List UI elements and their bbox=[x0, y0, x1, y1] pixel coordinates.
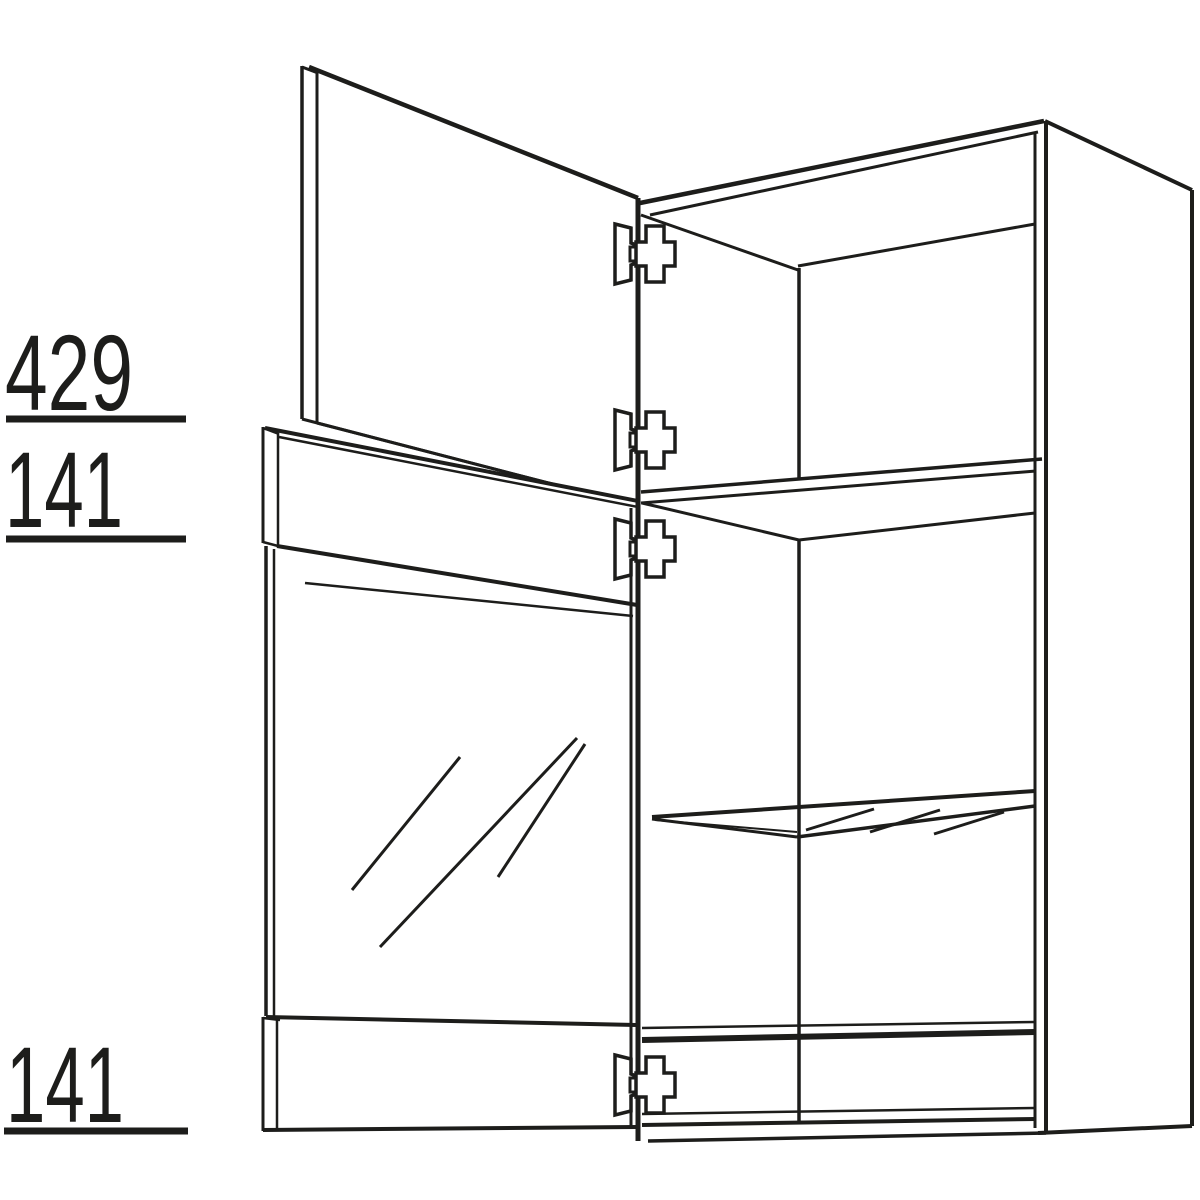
cabinet-technical-drawing: 429 141 141 bbox=[0, 0, 1200, 1200]
shelf-front-left-edge bbox=[652, 819, 797, 837]
bottom-front-top-edge bbox=[642, 1108, 1035, 1114]
glass-shelf bbox=[652, 791, 1035, 837]
dimension-labels: 429 141 141 bbox=[4, 312, 188, 1145]
bottom-front-band bbox=[642, 1119, 1035, 1125]
top-panel-inner-edge bbox=[650, 132, 1038, 215]
top-door-top-edge bbox=[309, 67, 638, 198]
dimension-top-door: 429 bbox=[5, 312, 133, 433]
bottom-outer-edge bbox=[648, 1133, 1046, 1141]
bottom-back-band bbox=[642, 1032, 1035, 1040]
divider-back-edge bbox=[799, 513, 1035, 540]
hinge-icon bbox=[615, 224, 675, 284]
hinge-icon bbox=[615, 519, 675, 579]
technical-drawing-page: 429 141 141 bbox=[0, 0, 1200, 1200]
hinge-icon bbox=[615, 410, 675, 470]
glass-pane-top-edge bbox=[305, 583, 633, 616]
bottom-back-edge bbox=[642, 1022, 1035, 1028]
top-door-bottom-edge-inner bbox=[317, 423, 560, 486]
glass-reflection-lines bbox=[352, 738, 585, 947]
top-panel-front-edge bbox=[640, 121, 1044, 203]
glass-door bbox=[263, 427, 638, 1131]
right-panel-bottom-edge bbox=[1038, 1126, 1192, 1133]
glass-door-bottom-rail bbox=[263, 1017, 637, 1131]
cabinet-carcass bbox=[638, 121, 1192, 1141]
ceiling-back-edge bbox=[798, 224, 1035, 266]
hinge-icon bbox=[615, 1055, 675, 1115]
hinges bbox=[615, 224, 675, 1115]
right-panel-top-edge bbox=[1045, 121, 1192, 190]
dimension-top-rail: 141 bbox=[5, 429, 123, 550]
top-door bbox=[302, 66, 638, 486]
dimension-bottom-rail: 141 bbox=[6, 1024, 124, 1145]
glass-door-top-rail bbox=[263, 427, 638, 605]
